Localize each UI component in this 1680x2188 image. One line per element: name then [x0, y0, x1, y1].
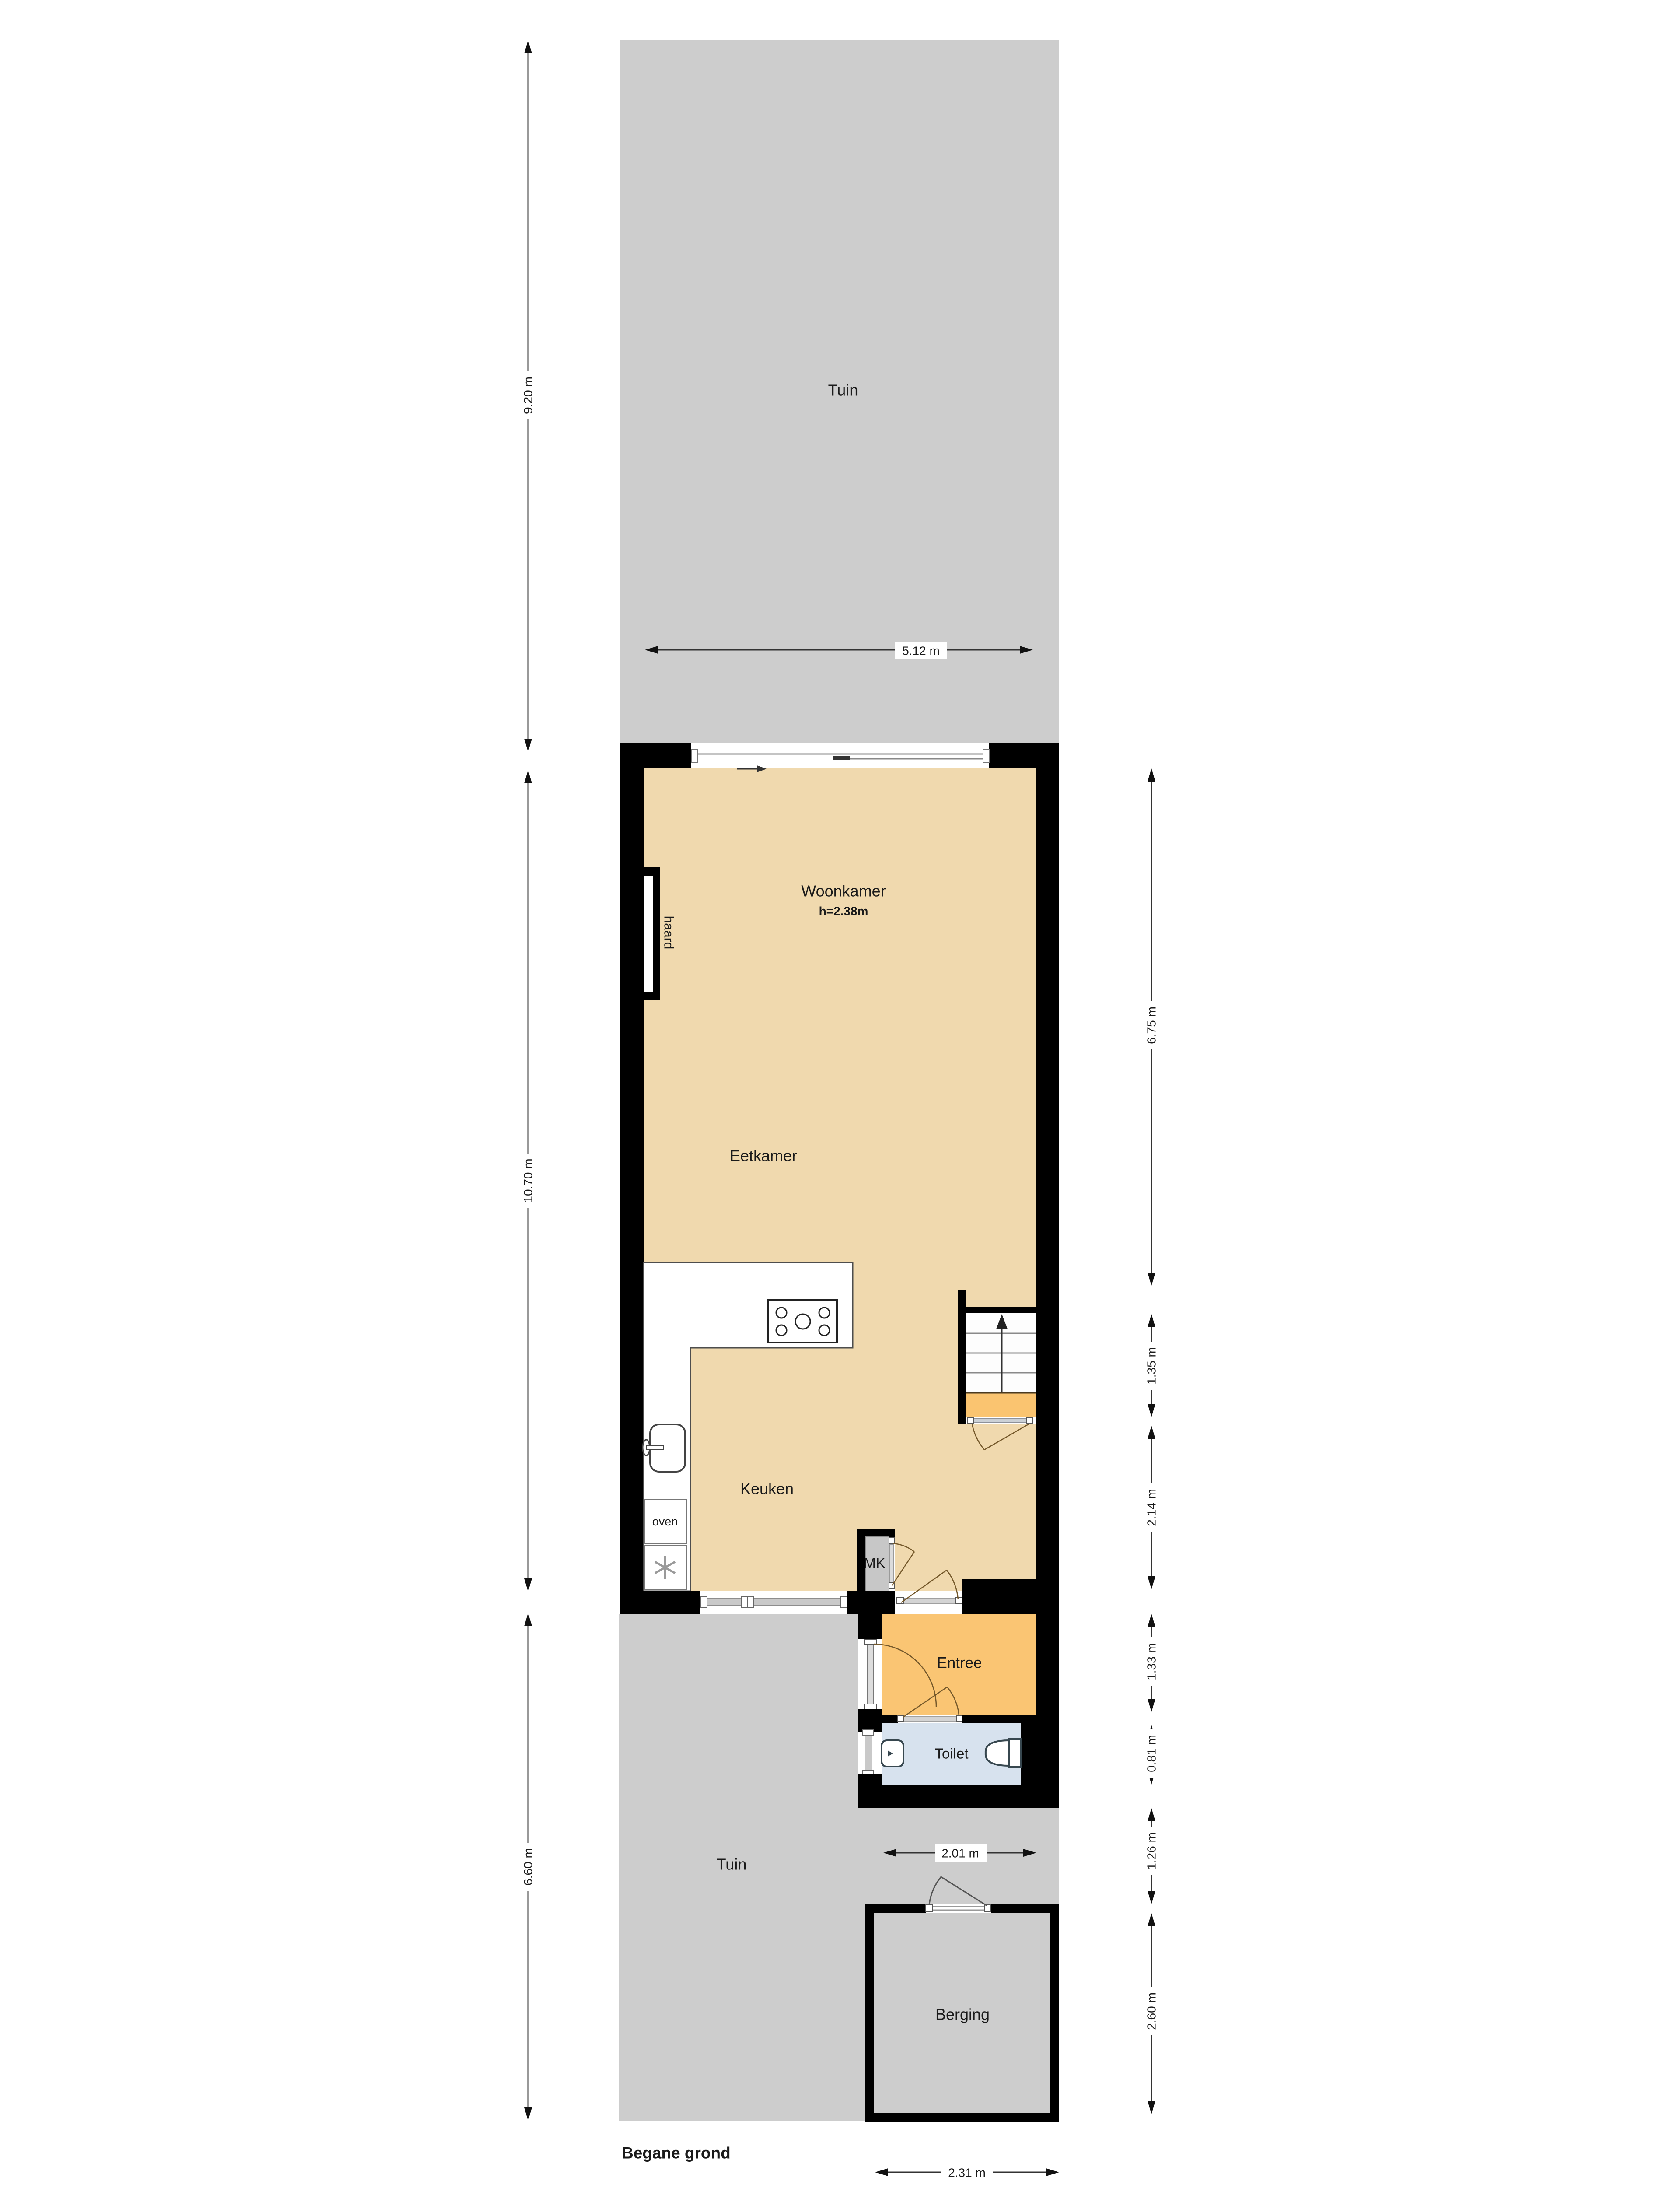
svg-text:Entree: Entree: [937, 1655, 982, 1672]
svg-text:1.26 m: 1.26 m: [1145, 1832, 1158, 1870]
svg-text:1.35 m: 1.35 m: [1145, 1347, 1158, 1385]
svg-text:5.12 m: 5.12 m: [902, 644, 940, 658]
svg-text:h=2.38m: h=2.38m: [819, 905, 868, 918]
svg-text:2.31 m: 2.31 m: [948, 2166, 986, 2180]
svg-text:Toilet: Toilet: [934, 1746, 968, 1762]
svg-text:MK: MK: [864, 1555, 885, 1571]
svg-text:Tuin: Tuin: [717, 1855, 747, 1873]
svg-text:Eetkamer: Eetkamer: [730, 1147, 797, 1165]
svg-text:9.20 m: 9.20 m: [521, 376, 535, 414]
svg-text:6.60 m: 6.60 m: [521, 1848, 535, 1886]
svg-text:2.14 m: 2.14 m: [1145, 1489, 1158, 1526]
svg-text:Berging: Berging: [935, 2006, 990, 2023]
svg-text:1.33 m: 1.33 m: [1145, 1643, 1158, 1680]
svg-text:Begane grond: Begane grond: [622, 2144, 731, 2162]
svg-text:10.70 m: 10.70 m: [521, 1158, 535, 1203]
svg-text:haard: haard: [661, 916, 676, 950]
svg-text:0.81 m: 0.81 m: [1145, 1735, 1158, 1772]
svg-text:2.01 m: 2.01 m: [941, 1847, 979, 1860]
svg-text:oven: oven: [652, 1515, 678, 1528]
svg-text:6.75 m: 6.75 m: [1145, 1006, 1158, 1044]
svg-text:Keuken: Keuken: [740, 1480, 794, 1498]
svg-text:2.60 m: 2.60 m: [1145, 1992, 1158, 2030]
svg-text:Woonkamer: Woonkamer: [801, 882, 885, 900]
svg-text:Tuin: Tuin: [828, 381, 858, 399]
